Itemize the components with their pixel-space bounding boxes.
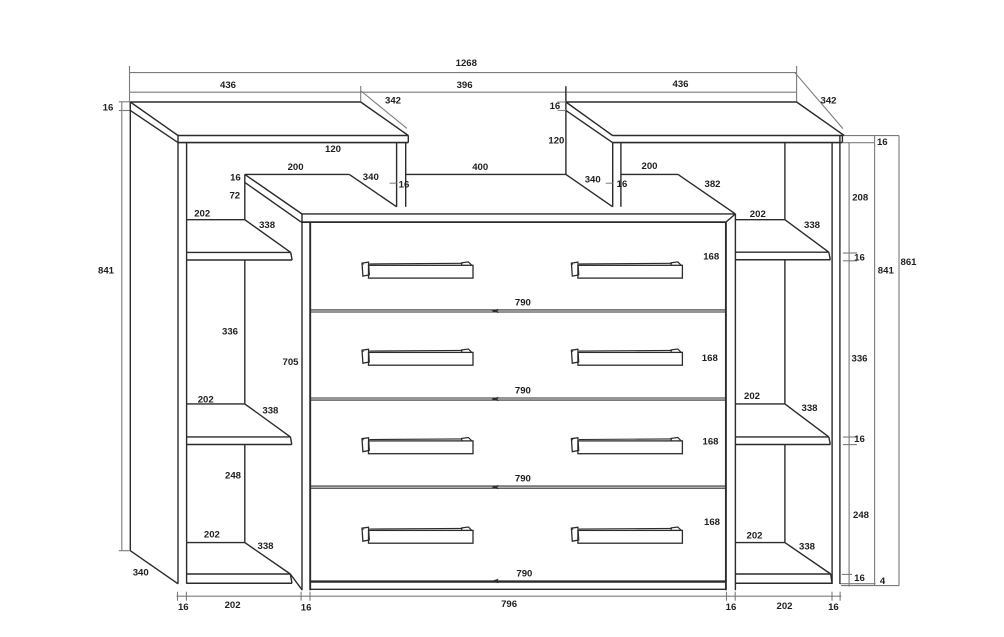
svg-text:16: 16 xyxy=(103,103,114,114)
svg-text:336: 336 xyxy=(851,354,867,365)
svg-text:796: 796 xyxy=(501,599,517,610)
svg-text:168: 168 xyxy=(703,251,720,262)
svg-text:16: 16 xyxy=(726,602,737,613)
svg-text:841: 841 xyxy=(878,265,895,276)
svg-text:790: 790 xyxy=(515,298,531,309)
svg-text:400: 400 xyxy=(472,162,488,173)
svg-text:861: 861 xyxy=(900,257,917,268)
svg-text:338: 338 xyxy=(799,542,816,553)
svg-text:336: 336 xyxy=(222,327,238,338)
svg-text:340: 340 xyxy=(585,175,601,186)
svg-text:790: 790 xyxy=(515,386,531,397)
svg-text:168: 168 xyxy=(702,353,719,364)
svg-text:338: 338 xyxy=(801,403,818,414)
svg-text:202: 202 xyxy=(744,391,760,402)
svg-text:382: 382 xyxy=(704,179,720,190)
svg-text:202: 202 xyxy=(204,529,220,540)
svg-text:790: 790 xyxy=(516,569,532,580)
svg-text:342: 342 xyxy=(820,96,836,107)
svg-text:16: 16 xyxy=(617,179,628,190)
svg-text:120: 120 xyxy=(548,136,564,147)
svg-text:168: 168 xyxy=(702,437,719,448)
svg-text:4: 4 xyxy=(880,576,886,587)
svg-text:338: 338 xyxy=(259,220,276,231)
svg-text:16: 16 xyxy=(550,101,561,112)
svg-text:705: 705 xyxy=(282,357,299,368)
svg-text:72: 72 xyxy=(229,191,240,202)
svg-text:16: 16 xyxy=(854,252,865,263)
svg-text:208: 208 xyxy=(852,192,869,203)
svg-text:396: 396 xyxy=(457,80,473,91)
svg-text:248: 248 xyxy=(853,510,870,521)
svg-text:436: 436 xyxy=(672,79,688,90)
svg-text:340: 340 xyxy=(133,568,149,579)
svg-text:16: 16 xyxy=(301,603,312,614)
svg-text:120: 120 xyxy=(325,144,341,155)
svg-text:841: 841 xyxy=(98,266,115,277)
svg-text:202: 202 xyxy=(746,531,762,542)
svg-text:202: 202 xyxy=(194,209,210,220)
svg-text:342: 342 xyxy=(385,95,401,106)
svg-text:16: 16 xyxy=(399,180,410,191)
svg-text:16: 16 xyxy=(230,173,241,184)
svg-text:168: 168 xyxy=(704,517,721,528)
svg-text:16: 16 xyxy=(854,573,865,584)
svg-text:338: 338 xyxy=(262,406,279,417)
svg-text:202: 202 xyxy=(776,601,792,612)
svg-text:248: 248 xyxy=(225,471,242,482)
svg-text:16: 16 xyxy=(828,602,839,613)
svg-text:1268: 1268 xyxy=(456,58,478,69)
svg-text:436: 436 xyxy=(220,80,236,91)
svg-text:16: 16 xyxy=(854,434,865,445)
svg-text:340: 340 xyxy=(363,172,379,183)
svg-text:16: 16 xyxy=(178,602,189,613)
svg-text:790: 790 xyxy=(515,474,531,485)
svg-text:338: 338 xyxy=(257,541,274,552)
svg-text:16: 16 xyxy=(877,137,888,148)
svg-text:202: 202 xyxy=(225,600,241,611)
svg-text:200: 200 xyxy=(288,162,304,173)
svg-text:200: 200 xyxy=(641,161,657,172)
svg-text:202: 202 xyxy=(750,209,766,220)
svg-text:202: 202 xyxy=(198,395,214,406)
svg-text:338: 338 xyxy=(804,220,821,231)
